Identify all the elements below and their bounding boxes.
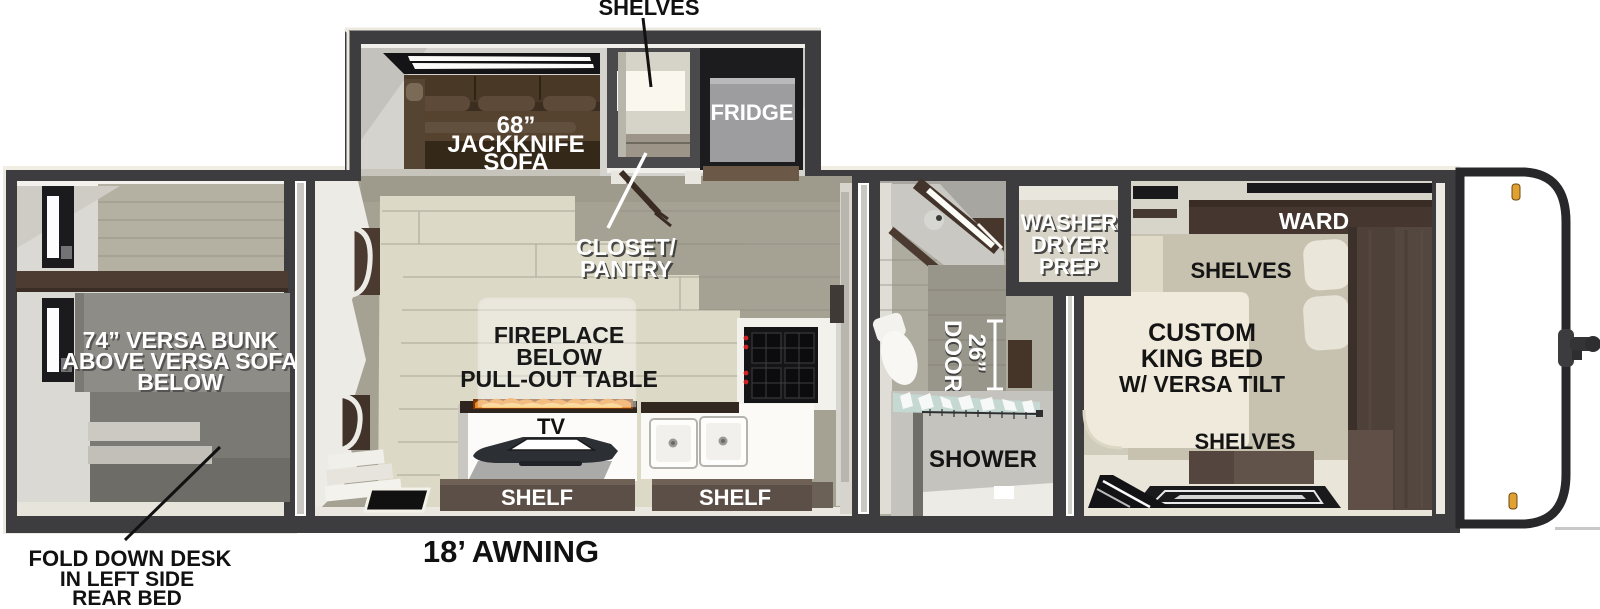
svg-text:SHELF: SHELF — [699, 485, 771, 510]
svg-text:CUSTOM: CUSTOM — [1148, 319, 1256, 347]
svg-text:PREP: PREP — [1039, 254, 1099, 279]
svg-text:SOFA: SOFA — [483, 149, 548, 176]
svg-text:26”: 26” — [963, 334, 990, 373]
svg-text:DOOR: DOOR — [939, 320, 966, 392]
svg-text:SHELVES: SHELVES — [1190, 258, 1291, 283]
svg-text:REAR BED: REAR BED — [72, 587, 182, 609]
svg-text:SHELF: SHELF — [501, 485, 573, 510]
svg-text:PANTRY: PANTRY — [580, 256, 672, 282]
svg-text:18’ AWNING: 18’ AWNING — [423, 534, 599, 569]
svg-text:KING BED: KING BED — [1141, 345, 1263, 373]
svg-text:SHOWER: SHOWER — [929, 446, 1037, 473]
svg-text:SHELVES: SHELVES — [1194, 429, 1295, 454]
svg-text:PULL-OUT TABLE: PULL-OUT TABLE — [460, 366, 658, 392]
svg-text:WARD: WARD — [1279, 208, 1349, 234]
svg-text:SHELVES: SHELVES — [598, 0, 699, 20]
svg-text:BELOW: BELOW — [137, 369, 223, 395]
svg-text:FRIDGE: FRIDGE — [710, 100, 793, 125]
svg-text:W/ VERSA TILT: W/ VERSA TILT — [1119, 371, 1285, 397]
svg-text:TV: TV — [537, 414, 565, 439]
